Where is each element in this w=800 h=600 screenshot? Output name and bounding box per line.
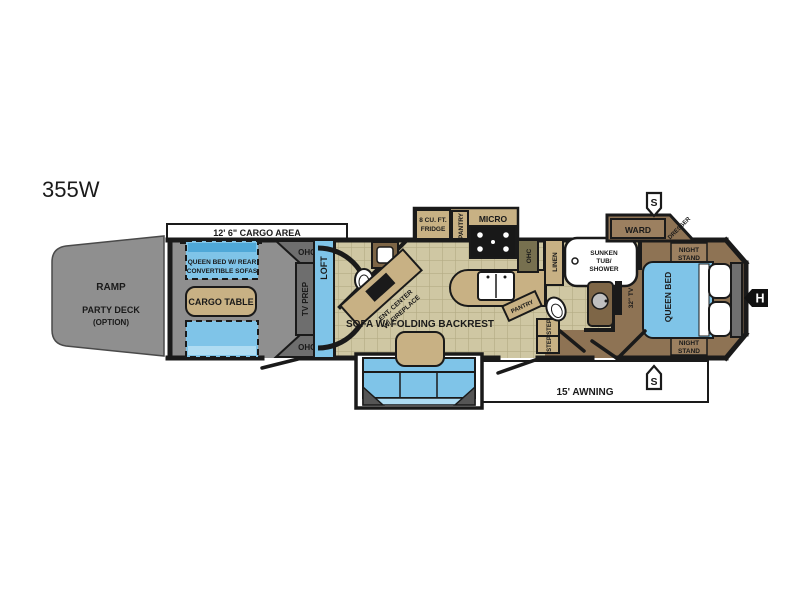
headboard	[731, 263, 742, 337]
bath-vanity	[588, 282, 613, 326]
refrigerator	[416, 210, 450, 239]
wardrobe-label: WARD	[625, 225, 651, 235]
microwave-label: MICRO	[479, 214, 508, 224]
pillow-top	[709, 264, 731, 298]
party-deck-label: PARTY DECK	[82, 305, 140, 315]
svg-text:NIGHT: NIGHT	[679, 247, 699, 254]
kitchen-pantry-label: PANTRY	[458, 212, 465, 239]
floorplan-drawing: 355W 12' 6" CARGO AREA 15' AWNING RAMP P…	[0, 0, 800, 600]
queen-bed-label: QUEEN BED	[663, 272, 673, 323]
linen-label: LINEN	[552, 252, 559, 272]
sofa-label: SOFA W/ FOLDING BACKREST	[346, 319, 494, 330]
ramp-label: RAMP	[96, 282, 126, 293]
sunken-tub-shower: SUNKEN TUB/ SHOWER	[565, 238, 637, 286]
entry-steps: STEP STEP	[537, 319, 559, 353]
party-deck-option-label: (OPTION)	[93, 318, 129, 327]
floorplan-page: 355W 12' 6" CARGO AREA 15' AWNING RAMP P…	[0, 0, 800, 600]
kitchen-sink	[478, 272, 514, 300]
fridge-label-2: FRIDGE	[421, 226, 446, 233]
fridge-label-1: 8 CU. FT.	[419, 217, 447, 224]
model-number: 355W	[42, 177, 100, 202]
ramp-party-deck	[52, 236, 164, 356]
step-label-1: STEP	[547, 319, 553, 335]
svg-text:NIGHT: NIGHT	[679, 340, 699, 347]
svg-text:STAND: STAND	[678, 348, 700, 355]
svg-text:S: S	[650, 376, 657, 388]
awning-label: 15' AWNING	[556, 387, 613, 398]
cargo-table-label: CARGO TABLE	[188, 297, 253, 307]
tv-prep-label: TV PREP	[301, 281, 310, 316]
garage-bed-label-1: QUEEN BED W/ REAR	[188, 259, 257, 266]
cargo-area-dimension-label: 12' 6" CARGO AREA	[213, 228, 301, 238]
tub-label-2: TUB/	[596, 258, 611, 265]
bedroom-tv-label: 32" TV	[628, 287, 635, 308]
slide-marker-top: S	[647, 193, 661, 216]
svg-text:STAND: STAND	[678, 255, 700, 262]
tub-label-3: SHOWER	[589, 266, 619, 273]
bed-sheet-fold	[699, 264, 709, 336]
garage-convertible-bed: QUEEN BED W/ REAR CONVERTIBLE SOFAS	[186, 241, 258, 279]
bed-bolster	[188, 243, 256, 252]
pillow-bottom	[709, 302, 731, 336]
step-label-2: STEP	[547, 336, 553, 352]
living-table	[396, 332, 444, 366]
loft-label: LOFT	[319, 256, 329, 280]
wardrobe-slideout: WARD DRESSER	[607, 215, 694, 241]
kitchen-ohc-label: OHC	[526, 248, 533, 263]
svg-text:H: H	[755, 292, 764, 306]
garage-bed-label-2: CONVERTIBLE SOFAS	[187, 268, 258, 275]
sofa-seat	[363, 372, 475, 398]
svg-text:S: S	[650, 197, 657, 209]
sofa-front-edge	[188, 346, 256, 355]
night-stand-top: NIGHT STAND	[671, 243, 707, 262]
tub-label-1: SUNKEN	[590, 250, 618, 257]
range-stove	[470, 226, 516, 258]
garage-convertible-sofa	[186, 321, 258, 357]
